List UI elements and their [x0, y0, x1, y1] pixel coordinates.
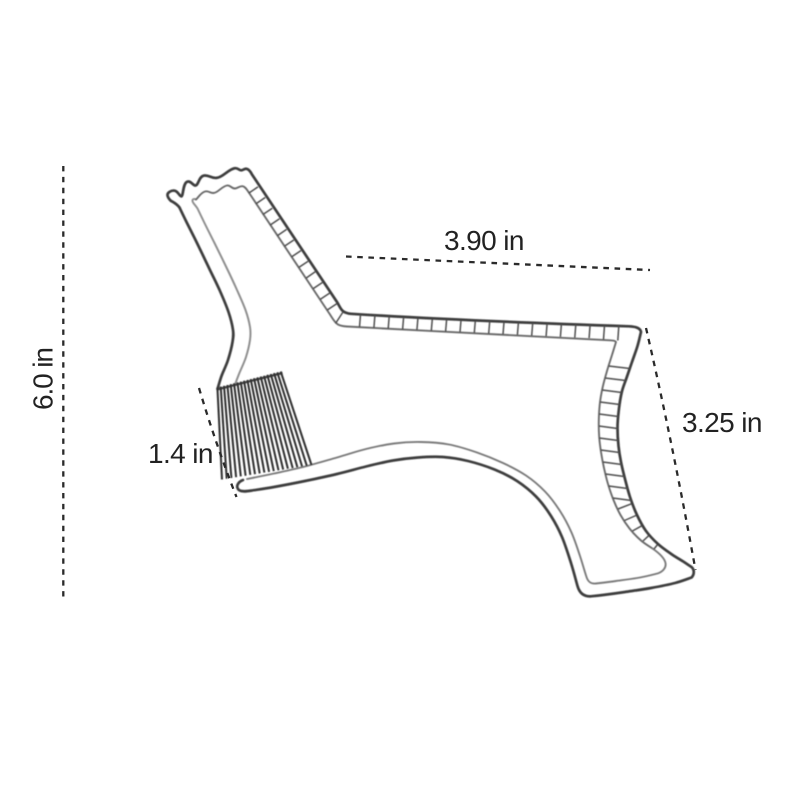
svg-text:6.0 in: 6.0 in: [28, 348, 59, 410]
svg-text:3.90 in: 3.90 in: [444, 225, 524, 256]
svg-text:3.25 in: 3.25 in: [682, 407, 762, 438]
svg-text:1.4 in: 1.4 in: [148, 438, 213, 469]
